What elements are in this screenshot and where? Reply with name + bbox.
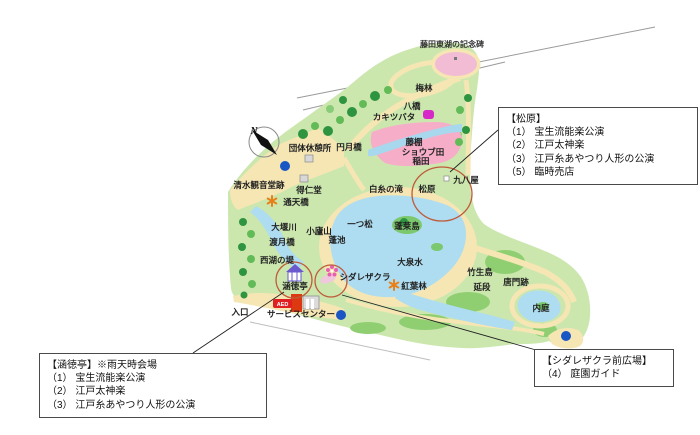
label-inada: 稲田 xyxy=(412,156,429,166)
label-tokujindo: 得仁堂 xyxy=(295,185,322,195)
label-yatsuhashi: 八橋 xyxy=(402,101,421,111)
dot-southeast xyxy=(561,331,571,341)
shidarezakura-hiroba-info-box: 【シダレザクラ前広場】 （4） 庭園ガイド xyxy=(534,349,674,387)
label-togetsukyo: 渡月橋 xyxy=(269,237,295,247)
label-shidarezakura: シダレザクラ xyxy=(339,272,390,282)
label-oigawa: 大堰川 xyxy=(271,222,297,232)
matsubara-box-item: （2） 江戸太神楽 xyxy=(506,139,690,152)
label-tsutenkyo: 通天橋 xyxy=(283,197,309,207)
hiroba-box-item: （4） 庭園ガイド xyxy=(542,368,666,381)
kantokutei-info-box: 【涵徳亭】※雨天時会場 （1） 宝生流能楽公演 （2） 江戸太神楽 （3） 江戸… xyxy=(39,353,267,418)
plum-area xyxy=(435,52,477,76)
label-daisensui: 大泉水 xyxy=(397,257,423,267)
matsubara-box-item: （1） 宝生流能楽公演 xyxy=(506,126,690,139)
pond-yomogi xyxy=(332,246,350,254)
kantokutei-box-item: （3） 江戸糸あやつり人形の公演 xyxy=(47,399,259,412)
label-saiko-no-tsutsumi: 西湖の堤 xyxy=(260,255,295,265)
svg-text:N: N xyxy=(249,126,258,137)
label-nobedan: 延段 xyxy=(472,282,491,292)
label-koyorin: 紅葉林 xyxy=(401,281,427,291)
matsubara-box-title: 【松原】 xyxy=(506,113,690,126)
label-dantai-kyukeijo: 団体休憩所 xyxy=(289,143,332,153)
park-map-page: AED N 藤田東湖の記念碑 梅林 八橋 カキツバタ 円月橋 団体休憩所 藤棚 … xyxy=(0,0,700,435)
aed-badge: AED xyxy=(273,299,292,308)
label-karamon-ato: 唐門跡 xyxy=(503,277,529,287)
label-bairin: 梅林 xyxy=(415,83,433,93)
label-fujidana: 藤棚 xyxy=(404,137,423,147)
kantokutei-box-item: （1） 宝生流能楽公演 xyxy=(47,372,259,385)
label-matsubara: 松原 xyxy=(418,184,436,194)
kuhachiya-icon xyxy=(444,176,449,181)
kantokutei-box-item: （2） 江戸太神楽 xyxy=(47,385,259,398)
label-service-center: サービスセンター xyxy=(267,309,335,319)
tokujindo-icon xyxy=(300,175,308,182)
label-naitei: 内庭 xyxy=(532,303,550,313)
label-kakitsubata: カキツバタ xyxy=(373,112,416,122)
label-fujita-monument: 藤田東湖の記念碑 xyxy=(419,39,484,49)
hiroba-box-title: 【シダレザクラ前広場】 xyxy=(542,355,666,368)
label-iriguchi: 入口 xyxy=(230,307,248,317)
kakitsubata-flower-blob xyxy=(423,110,434,119)
label-kuhachiya: 九八屋 xyxy=(452,175,479,185)
service-center-building-icon xyxy=(303,296,319,309)
label-chikubushima: 竹生島 xyxy=(466,267,493,277)
group-rest-area-icon xyxy=(305,155,313,162)
label-horaijima: 蓬莱島 xyxy=(394,221,420,231)
label-engetsukyo: 円月橋 xyxy=(336,142,362,152)
label-shorozan: 小廬山 xyxy=(305,226,332,236)
label-hitotsumatsu: 一つ松 xyxy=(347,219,373,229)
dot-service-center xyxy=(336,310,346,320)
dot-group-rest xyxy=(280,161,290,171)
matsubara-box-item: （3） 江戸糸あやつり人形の公演 xyxy=(506,153,690,166)
label-kantokutei: 涵徳亭 xyxy=(282,281,308,291)
svg-text:AED: AED xyxy=(277,302,289,308)
label-shiraito: 白糸の滝 xyxy=(369,184,404,194)
monument-mark xyxy=(454,57,457,60)
label-shimizu-kannondo: 清水観音堂跡 xyxy=(233,180,285,190)
label-yomogiike: 蓬池 xyxy=(328,235,346,245)
matsubara-box-item: （5） 臨時売店 xyxy=(506,166,690,179)
matsubara-info-box: 【松原】 （1） 宝生流能楽公演 （2） 江戸太神楽 （3） 江戸糸あやつり人形… xyxy=(498,107,698,185)
kantokutei-box-title: 【涵徳亭】※雨天時会場 xyxy=(47,359,259,372)
